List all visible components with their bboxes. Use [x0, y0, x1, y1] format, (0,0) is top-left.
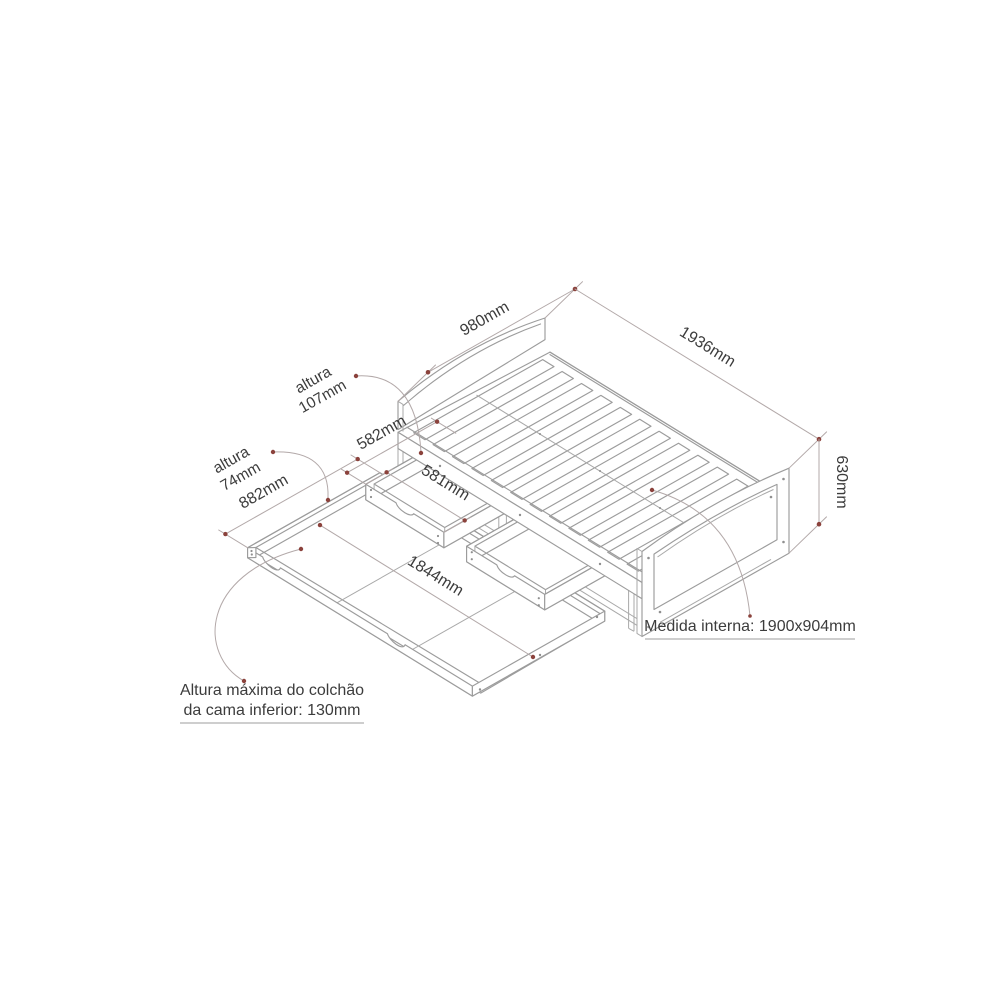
- bed-length-label: 1936mm: [676, 324, 738, 371]
- daybed-technical-drawing: 980mm 1936mm 630mm 582mm: [0, 0, 1000, 1000]
- max-mattress-line1: Altura máxima do colchão: [180, 682, 364, 699]
- dim-bed-height: 630mm: [789, 439, 850, 553]
- technical-drawing-page: 980mm 1936mm 630mm 582mm: [0, 0, 1000, 1000]
- trundle-left-edge: [248, 548, 256, 558]
- max-mattress-line2: da cama inferior: 130mm: [184, 702, 361, 719]
- bed-height-label: 630mm: [833, 455, 850, 508]
- internal-measure-label: Medida interna: 1900x904mm: [644, 618, 856, 635]
